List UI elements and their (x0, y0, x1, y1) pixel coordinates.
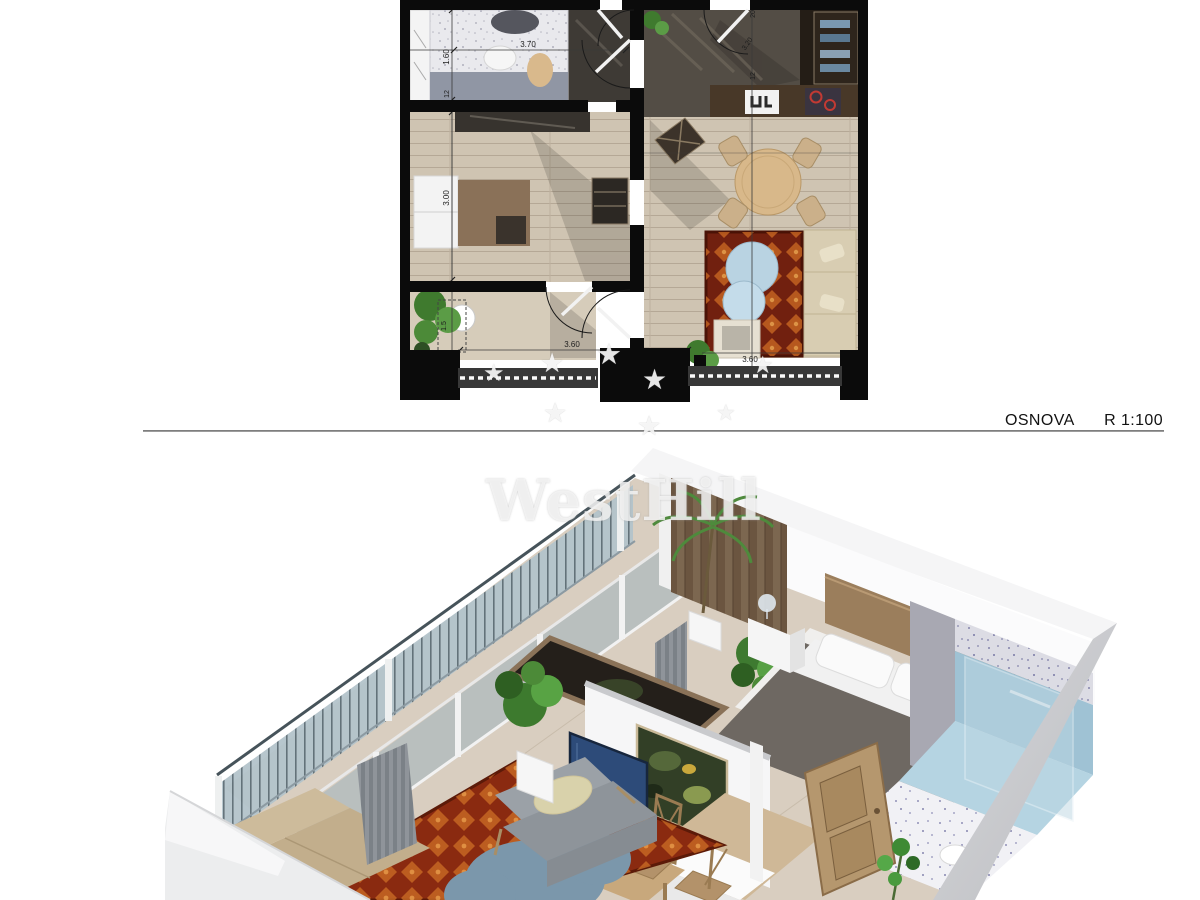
plan-scale: R 1:100 (1104, 412, 1163, 430)
living-curtain (357, 743, 417, 865)
dim-12-right: 12 (750, 72, 757, 80)
living-right-furniture (686, 230, 856, 369)
bed-pillow (491, 10, 539, 34)
railing-post (385, 659, 392, 721)
plan-title: OSNOVA (1005, 412, 1075, 430)
bedroom-wardrobe (568, 10, 630, 102)
dim-12-left: 12 (444, 90, 451, 98)
window-frame-post (619, 575, 625, 639)
apartment-3d-render (165, 443, 1125, 900)
dim-300: 3.00 (442, 190, 451, 206)
coffee-table-small (723, 281, 765, 323)
railing-post (617, 491, 624, 551)
kitchen-sink (745, 90, 779, 114)
star-watermark-icon: ★ (716, 402, 736, 424)
plan-caption: OSNOVA R 1:100 (1005, 412, 1163, 430)
corridor-floor (644, 230, 702, 358)
dim-360-left: 3.60 (564, 340, 580, 349)
floor-plan-drawing: 3.70 1.60 12 3.00 1.5 3.60 20 3.20 12 3.… (400, 0, 868, 402)
door-frame (750, 741, 763, 883)
sheet-divider-line (143, 430, 1164, 432)
stool (527, 53, 553, 87)
sofa-side-table (496, 216, 526, 244)
star-watermark-icon: ★ (543, 400, 567, 427)
dim-20: 20 (750, 10, 757, 18)
dim-160: 1.60 (442, 49, 451, 65)
stove (805, 88, 841, 115)
star-watermark-icon: ★ (637, 413, 661, 440)
dim-15: 1.5 (441, 321, 448, 331)
bedside-lamp (758, 594, 776, 612)
closet (410, 10, 430, 102)
living-door-leaf (598, 308, 630, 338)
window-frame-post (455, 693, 461, 757)
dim-370: 3.70 (520, 40, 536, 49)
door-knob (874, 808, 880, 814)
white-pillar (659, 473, 671, 590)
shoe-cabinet (592, 178, 628, 224)
dim-360-right: 3.60 (742, 355, 758, 364)
